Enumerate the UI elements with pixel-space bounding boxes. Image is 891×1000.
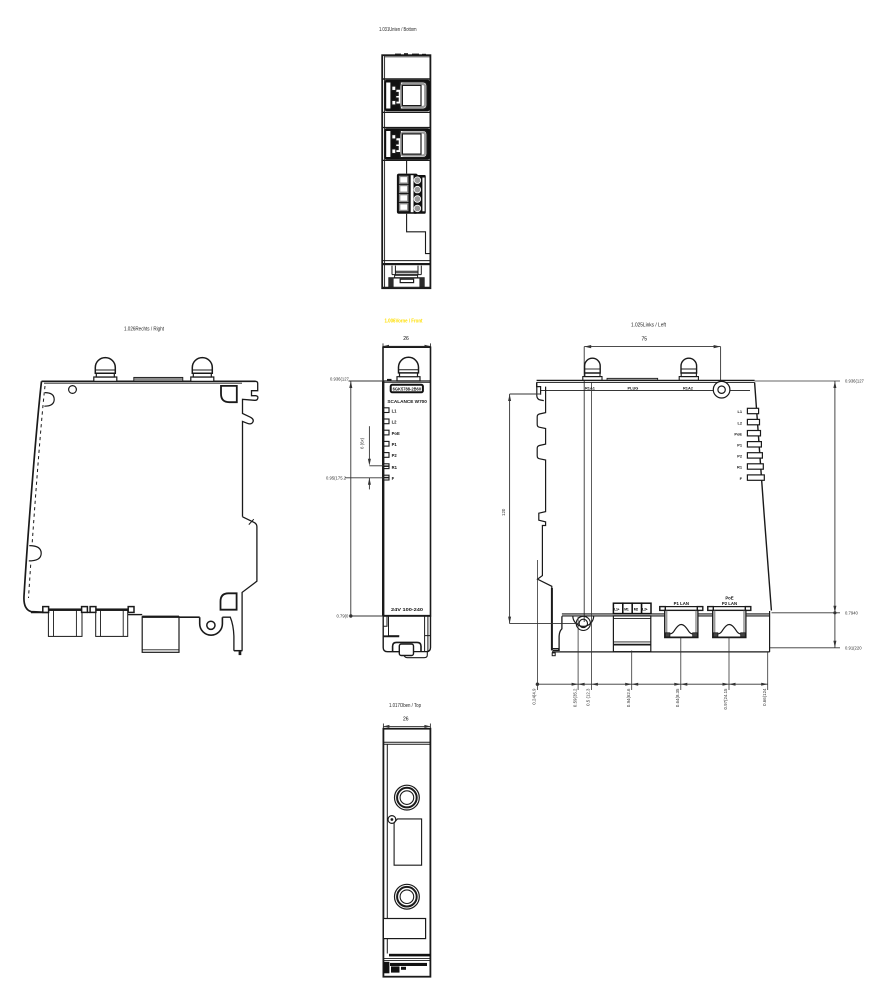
svg-text:1.006Vorne / Front: 1.006Vorne / Front (385, 319, 423, 325)
svg-text:R1: R1 (737, 465, 743, 470)
svg-text:PLUG: PLUG (628, 385, 639, 390)
svg-text:R1A2: R1A2 (683, 385, 694, 390)
svg-text:6 (6x): 6 (6x) (359, 437, 364, 449)
svg-text:0.7940: 0.7940 (845, 610, 858, 615)
svg-text:L1: L1 (392, 408, 398, 413)
svg-text:26: 26 (403, 717, 409, 723)
svg-text:F: F (392, 476, 395, 481)
svg-text:1.031Unten / Bottom: 1.031Unten / Bottom (379, 27, 417, 33)
svg-text:1.026Rechts / Right: 1.026Rechts / Right (124, 327, 164, 333)
svg-text:0.97(24.15: 0.97(24.15 (723, 688, 728, 710)
svg-text:0.59(35.2: 0.59(35.2 (572, 688, 577, 707)
svg-text:75: 75 (642, 337, 648, 343)
svg-text:0.936(127: 0.936(127 (845, 379, 865, 384)
svg-text:SCALANCE W700: SCALANCE W700 (387, 399, 427, 405)
svg-text:P2: P2 (737, 454, 743, 459)
svg-text:PoE: PoE (725, 595, 733, 600)
svg-text:PoE: PoE (392, 431, 400, 436)
svg-text:P1: P1 (737, 443, 743, 448)
svg-text:L2: L2 (392, 420, 398, 425)
svg-text:6GK5788-2B60: 6GK5788-2B60 (393, 387, 422, 392)
svg-text:P2: P2 (392, 453, 398, 458)
svg-text:0.66(124: 0.66(124 (762, 688, 767, 706)
svg-text:0.5 (12.3: 0.5 (12.3 (586, 688, 591, 706)
svg-text:PoE: PoE (734, 431, 742, 436)
svg-text:1.025Links / Left: 1.025Links / Left (631, 323, 667, 329)
svg-text:R1: R1 (392, 465, 398, 470)
svg-text:P2 LAN: P2 LAN (722, 601, 737, 606)
svg-text:0.91(220: 0.91(220 (845, 645, 862, 650)
svg-text:L2+: L2+ (642, 607, 647, 611)
svg-text:M2: M2 (634, 607, 639, 611)
svg-text:24V 100-240: 24V 100-240 (391, 607, 424, 612)
svg-text:L1+: L1+ (614, 607, 619, 611)
svg-text:1.017Oben / Top: 1.017Oben / Top (389, 703, 421, 709)
svg-text:0.95(175.2: 0.95(175.2 (326, 475, 347, 480)
svg-text:P1: P1 (392, 442, 398, 447)
svg-text:0.79(0: 0.79(0 (337, 614, 350, 619)
svg-text:0.24(4.9: 0.24(4.9 (531, 688, 536, 705)
svg-text:0.936(127: 0.936(127 (330, 377, 350, 382)
svg-text:R1A1: R1A1 (585, 385, 596, 390)
svg-text:P1 LAN: P1 LAN (674, 601, 689, 606)
svg-text:120: 120 (501, 508, 506, 516)
svg-text:26: 26 (403, 336, 409, 342)
svg-text:0.64(8.35: 0.64(8.35 (675, 688, 680, 707)
svg-text:0.94(62.6: 0.94(62.6 (626, 688, 631, 707)
svg-text:M1: M1 (624, 607, 629, 611)
